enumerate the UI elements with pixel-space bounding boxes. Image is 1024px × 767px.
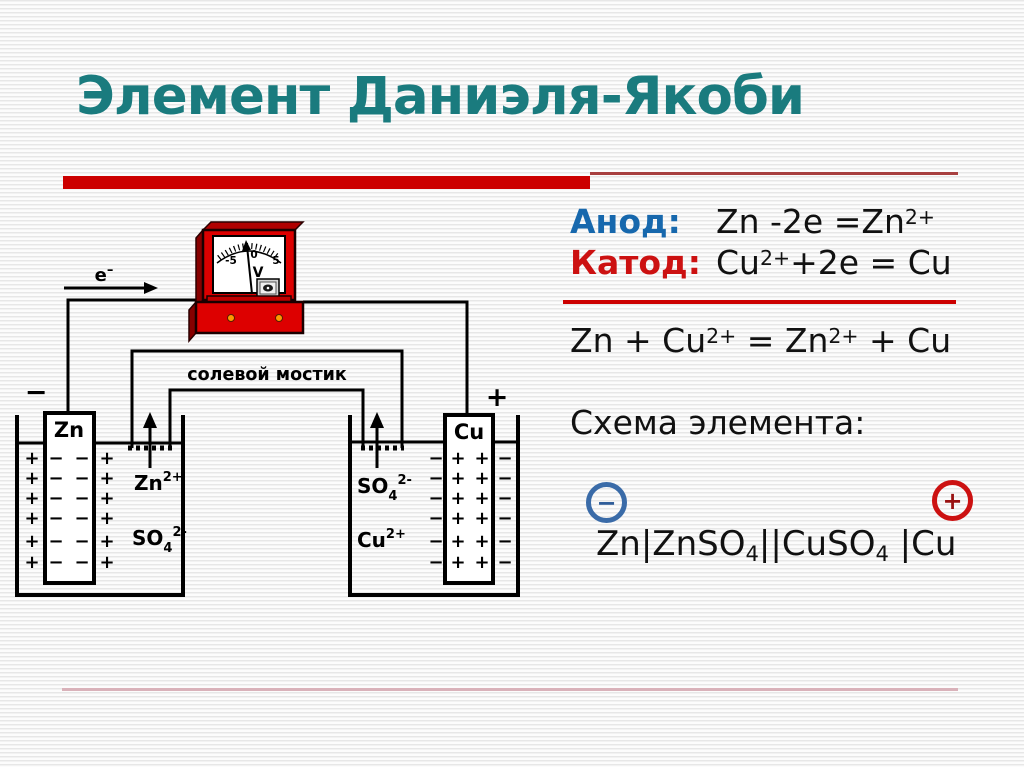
charge-minus: − <box>428 468 443 489</box>
title-accent-bar <box>63 176 590 189</box>
title-accent-thin-line <box>590 172 958 175</box>
so4-sup: 2- <box>172 525 186 540</box>
charge-plus: + <box>450 468 465 489</box>
charge-minus: − <box>497 552 512 573</box>
charge-minus: − <box>497 531 512 552</box>
zinc-electrode-label: Zn <box>54 418 84 442</box>
salt-bridge-label: солевой мостик <box>187 365 347 385</box>
sulfate-ion-label-right: SO42- <box>357 473 412 504</box>
galvanic-cell-diagram: e– − + солевой мостик Zn + + + + + + − − <box>0 215 540 615</box>
sulfate-ion-label-left: SO42- <box>132 525 187 556</box>
electron-label: e– <box>95 263 114 286</box>
anode-eq-superscript: 2+ <box>905 205 935 229</box>
copper-electrode-label: Cu <box>454 420 484 444</box>
charge-minus: − <box>428 448 443 469</box>
charge-minus: − <box>74 508 89 529</box>
ion-flow-arrowhead-left <box>143 412 157 428</box>
positive-terminal-circle: + <box>932 480 973 521</box>
charge-plus: + <box>474 552 489 573</box>
charge-plus: + <box>24 448 39 469</box>
overall-p2: = Zn <box>736 321 828 360</box>
charge-plus: + <box>99 552 114 573</box>
charge-minus: − <box>48 468 63 489</box>
charge-plus: + <box>450 448 465 469</box>
left-charge-column-outer-left: + + + + + + <box>24 448 39 573</box>
charge-plus: + <box>474 488 489 509</box>
anode-reaction-row: Анод:Zn -2e =Zn2+ <box>570 202 935 241</box>
positive-terminal-sign: + <box>486 382 509 413</box>
charge-minus: − <box>428 552 443 573</box>
cu-ion-base: Cu <box>357 528 386 552</box>
charge-plus: + <box>99 488 114 509</box>
charge-plus: + <box>99 448 114 469</box>
electron-base: e <box>95 265 107 286</box>
charge-plus: + <box>24 488 39 509</box>
reaction-divider-line <box>563 300 956 304</box>
charge-minus: − <box>497 468 512 489</box>
charge-plus: + <box>474 531 489 552</box>
cathode-eq-p2: +2e = Cu <box>790 243 952 282</box>
negative-terminal-circle: − <box>586 482 627 523</box>
charge-plus: + <box>450 488 465 509</box>
charge-plus: + <box>450 508 465 529</box>
charge-minus: − <box>428 508 443 529</box>
charge-plus: + <box>474 448 489 469</box>
electron-arrow-head <box>144 282 158 294</box>
charge-minus: − <box>74 552 89 573</box>
charge-plus: + <box>474 468 489 489</box>
cathode-eq-superscript: 2+ <box>760 246 790 270</box>
charge-plus: + <box>99 531 114 552</box>
minus-sign: − <box>596 489 616 517</box>
voltmeter-base <box>196 302 303 333</box>
anode-eq-base: Zn -2e =Zn <box>716 202 905 241</box>
electron-flow-arrow: e– <box>64 263 158 294</box>
scheme-p2: ||CuSO <box>759 524 876 564</box>
scheme-sub1: 4 <box>745 541 758 566</box>
so4-base: SO <box>132 526 163 550</box>
scale-label-zero: 0 <box>250 249 257 261</box>
charge-minus: − <box>497 448 512 469</box>
overall-sup2: 2+ <box>828 324 858 348</box>
overall-reaction-row: Zn + Cu2+ = Zn2+ + Cu <box>570 321 951 360</box>
charge-minus: − <box>428 531 443 552</box>
scale-label-plus5: 5 <box>272 255 279 267</box>
base-terminal-dot-left <box>228 315 235 322</box>
electron-sup: – <box>107 263 114 278</box>
charge-plus: + <box>450 531 465 552</box>
charge-plus: + <box>24 468 39 489</box>
slide-title: Элемент Даниэля-Якоби <box>76 66 804 127</box>
charge-minus: − <box>74 488 89 509</box>
zn-ion-base: Zn <box>134 471 163 495</box>
zn-ion-sup: 2+ <box>163 470 183 485</box>
cathode-reaction-row: Катод:Cu2++2e = Cu <box>570 243 952 282</box>
scheme-sub2: 4 <box>875 541 888 566</box>
so4-base: SO <box>357 474 388 498</box>
cathode-equation: Cu2++2e = Cu <box>716 243 952 282</box>
salt-bridge: солевой мостик <box>128 351 404 468</box>
charge-minus: − <box>48 448 63 469</box>
charge-minus: − <box>48 552 63 573</box>
right-charge-column-outer-right: − − − − − − <box>497 448 512 573</box>
charge-minus: − <box>497 488 512 509</box>
footer-accent-line <box>62 688 958 691</box>
charge-plus: + <box>450 552 465 573</box>
charge-plus: + <box>24 508 39 529</box>
right-wire <box>303 302 467 415</box>
charge-minus: − <box>48 488 63 509</box>
zinc-ion-label: Zn2+ <box>134 470 183 495</box>
so4-sub: 4 <box>388 489 397 504</box>
so4-sub: 4 <box>163 541 172 556</box>
overall-sup1: 2+ <box>706 324 736 348</box>
cu-ion-sup: 2+ <box>386 527 406 542</box>
so4-sup: 2- <box>397 473 411 488</box>
charge-minus: − <box>74 468 89 489</box>
cathode-eq-p1: Cu <box>716 243 760 282</box>
negative-terminal-sign: − <box>25 377 48 408</box>
charge-minus: − <box>74 448 89 469</box>
scheme-p1: Zn|ZnSO <box>596 524 745 564</box>
anode-label: Анод: <box>570 202 716 241</box>
scheme-heading: Схема элемента: <box>570 403 865 442</box>
cell-scheme-notation: Zn|ZnSO4||CuSO4 |Cu <box>596 524 956 564</box>
scale-label-minus5: -5 <box>225 255 237 267</box>
overall-equation: Zn + Cu2+ = Zn2+ + Cu <box>570 321 951 360</box>
right-charge-column-outer-left: − − − − − − <box>428 448 443 573</box>
right-beaker: Cu − − − − − − + + + + + + + + + + + + −… <box>350 415 518 595</box>
cathode-label: Катод: <box>570 243 716 282</box>
charge-plus: + <box>24 552 39 573</box>
salt-bridge-inner <box>170 390 363 448</box>
charge-minus: − <box>48 508 63 529</box>
overall-p3: + Cu <box>859 321 952 360</box>
charge-plus: + <box>99 468 114 489</box>
charge-plus: + <box>24 531 39 552</box>
scheme-p3: |Cu <box>889 524 957 564</box>
anode-equation: Zn -2e =Zn2+ <box>716 202 935 241</box>
plus-sign: + <box>942 487 962 515</box>
copper-ion-label: Cu2+ <box>357 527 406 552</box>
charge-minus: − <box>74 531 89 552</box>
ion-flow-arrowhead-right <box>370 412 384 428</box>
voltmeter: -5 0 5 V <box>189 222 303 341</box>
base-terminal-dot-right <box>276 315 283 322</box>
left-charge-column-outer-right: + + + + + + <box>99 448 114 573</box>
left-beaker: Zn + + + + + + − − − − − − − − − − − − +… <box>17 413 187 595</box>
charge-plus: + <box>99 508 114 529</box>
charge-minus: − <box>428 488 443 509</box>
charge-minus: − <box>497 508 512 529</box>
left-wire <box>68 300 203 415</box>
overall-p1: Zn + Cu <box>570 321 706 360</box>
charge-plus: + <box>474 508 489 529</box>
charge-minus: − <box>48 531 63 552</box>
meter-knob-screw-dot <box>267 287 270 290</box>
